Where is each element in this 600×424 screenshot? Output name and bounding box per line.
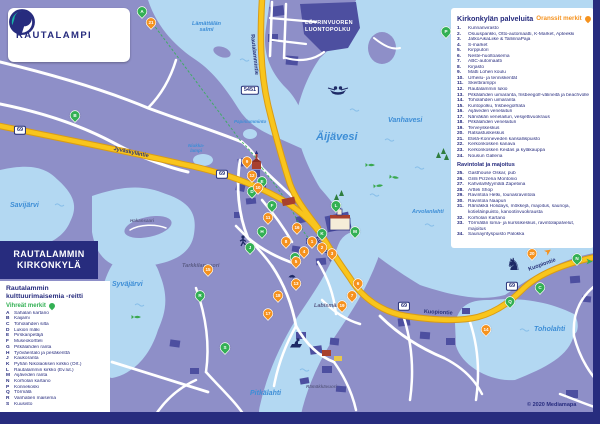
legend-item-key: 31. (457, 204, 468, 215)
marker-label: Q (506, 297, 515, 306)
marker-label: 11 (264, 213, 273, 222)
marker-label: 13 (292, 279, 301, 288)
green-map-marker: F (266, 199, 279, 212)
orange-map-marker: 14 (480, 323, 493, 336)
hospitality-subheader: Ravintolat ja majoitus (457, 162, 589, 168)
legend-item-label: Nousun Galleria (468, 154, 502, 160)
yellow-house-icon (334, 356, 342, 361)
red-house-icon (322, 350, 331, 356)
orange-map-marker: 11 (262, 211, 275, 224)
marker-label: 2 (318, 243, 327, 252)
green-map-marker: A (136, 5, 149, 18)
orange-map-marker: 17 (262, 307, 275, 320)
route-shield: 69 (398, 302, 410, 311)
legend-item: SKuusisto (6, 402, 106, 408)
marker-label: K (318, 229, 327, 238)
marker-label: S (221, 343, 230, 352)
marker-label: J (246, 243, 255, 252)
orange-map-marker: 6 (352, 277, 365, 290)
services-list: 1.Kunnanvirasto2.Osuuspankki, Otto-autom… (457, 26, 589, 159)
rautalampi-logo-icon (8, 8, 36, 36)
marker-label: 8 (282, 237, 291, 246)
legend-item: 34.Saunayrityspuisto Palokka (457, 232, 589, 238)
green-map-marker: J (244, 241, 257, 254)
green-map-marker: H (256, 225, 269, 238)
marker-label: 3 (328, 249, 337, 258)
marker-label: 17 (264, 309, 273, 318)
green-map-marker: L (330, 199, 343, 212)
marker-label: 10 (254, 183, 263, 192)
marker-label: 4 (300, 247, 309, 256)
orange-map-marker: 5 (290, 255, 303, 268)
orange-map-marker: 16 (291, 221, 304, 234)
green-map-marker: S (219, 341, 232, 354)
green-pin-icon (48, 301, 56, 309)
marker-label: 19 (338, 301, 347, 310)
green-map-marker: R (194, 289, 207, 302)
legend-item-key: 24. (457, 154, 468, 160)
orange-map-marker: 3 (326, 247, 339, 260)
offmap-direction-arrow: ➤ (586, 258, 593, 266)
frame-right (593, 0, 600, 424)
water-papinlampi (243, 129, 257, 139)
marker-label: L (332, 201, 341, 210)
services-title-label: Kirkonkylän palveluita (457, 14, 533, 23)
route-shield: 69 (506, 282, 518, 291)
map-title-line1: RAUTALAMMIN (13, 249, 84, 260)
marker-label: 7 (348, 291, 357, 300)
marker-label: 20 (528, 249, 537, 258)
marker-label: 18 (274, 291, 283, 300)
orange-map-marker: 15 (202, 263, 215, 276)
orange-map-marker: 18 (272, 289, 285, 302)
orange-map-marker: 12 (246, 169, 259, 182)
marker-label: 5 (292, 257, 301, 266)
marker-label: 6 (354, 279, 363, 288)
legend-item-key: S (6, 402, 14, 408)
orange-map-marker: 9 (241, 155, 254, 168)
marker-label: 16 (293, 223, 302, 232)
marker-label: 9 (243, 157, 252, 166)
map-poster: ♞ ☂ Lämättälän salmiSavijärviSyväjärviÄi… (0, 0, 600, 424)
orange-map-marker: 4 (298, 245, 311, 258)
hospitality-list: 25.Gasthouse Oskar, pub26.Grilli Pizzeri… (457, 171, 589, 238)
orange-map-marker: 19 (336, 299, 349, 312)
route-shield: 5451 (241, 86, 259, 95)
orange-map-marker: 10 (252, 181, 265, 194)
green-map-marker: K (316, 227, 329, 240)
orange-map-marker: 21 (145, 16, 158, 29)
orange-map-marker: 8 (280, 235, 293, 248)
frame-bottom (0, 412, 600, 424)
marker-label: 14 (482, 325, 491, 334)
marker-label: 12 (248, 171, 257, 180)
marker-label: H (258, 227, 267, 236)
route-shield: 69 (14, 126, 26, 135)
logo-card: RAUTALAMPI (8, 8, 130, 62)
culture-legend-list: ASahalan kartanoBKaijamiCToholahden silt… (6, 311, 106, 408)
legend-item-key: 34. (457, 232, 468, 238)
marker-label: B (71, 111, 80, 120)
marker-label: 1 (308, 237, 317, 246)
orange-marks-label: Oranssit merkit (536, 15, 581, 22)
marker-label: C (536, 283, 545, 292)
green-marks-label: Vihreät merkit (6, 303, 46, 309)
orange-pin-icon (583, 14, 591, 22)
horse-rider-icon: ♞ (506, 255, 521, 274)
marker-label: F (268, 201, 277, 210)
legend-item: 31.Rämäkkä Holidays, mökkejä, majoitus, … (457, 204, 589, 215)
legend-item: 24.Nousun Galleria (457, 154, 589, 160)
orange-map-marker: 7 (346, 289, 359, 302)
legend-item-key: 33. (457, 221, 468, 232)
marker-label: 15 (204, 265, 213, 274)
green-map-marker: B (69, 109, 82, 122)
marker-label: M (351, 227, 360, 236)
legend-item-label: Kuusisto (14, 402, 32, 408)
orange-map-marker: 20 (526, 247, 539, 260)
culture-legend-subtitle: Vihreät merkit (6, 303, 106, 309)
map-title-line2: KIRKONKYLÄ (17, 260, 81, 271)
green-map-marker: N (571, 252, 584, 265)
legend-item-label: Saunayrityspuisto Palokka (468, 232, 524, 238)
map-title-box: RAUTALAMMIN KIRKONKYLÄ (0, 241, 98, 279)
culture-legend-title: Rautalammin kulttuurimaisemia -reitti (6, 285, 106, 301)
marker-label: R (196, 291, 205, 300)
legend-item-label: Rämäkkä Holidays, mökkejä, majoitus, sau… (468, 204, 570, 215)
green-map-marker: Q (504, 295, 517, 308)
orange-map-marker: 13 (290, 277, 303, 290)
route-shield: 69 (216, 170, 228, 179)
copyright-credit: © 2020 Mediamapa (527, 402, 576, 408)
culture-route-legend: Rautalammin kulttuurimaisemia -reitti Vi… (0, 281, 110, 412)
green-map-marker: C (534, 281, 547, 294)
green-map-marker: M (349, 225, 362, 238)
marker-label: A (138, 7, 147, 16)
legend-item-label: Törmälän loma- ja kurssikeskus, ravintol… (468, 221, 574, 232)
marker-label: P (442, 27, 451, 36)
services-legend-title: Kirkonkylän palveluita Oranssit merkit (457, 14, 589, 23)
marker-label: N (573, 254, 582, 263)
marker-label: 21 (147, 18, 156, 27)
services-legend: Kirkonkylän palveluita Oranssit merkit 1… (451, 8, 594, 248)
legend-item: 33.Törmälän loma- ja kurssikeskus, ravin… (457, 221, 589, 232)
